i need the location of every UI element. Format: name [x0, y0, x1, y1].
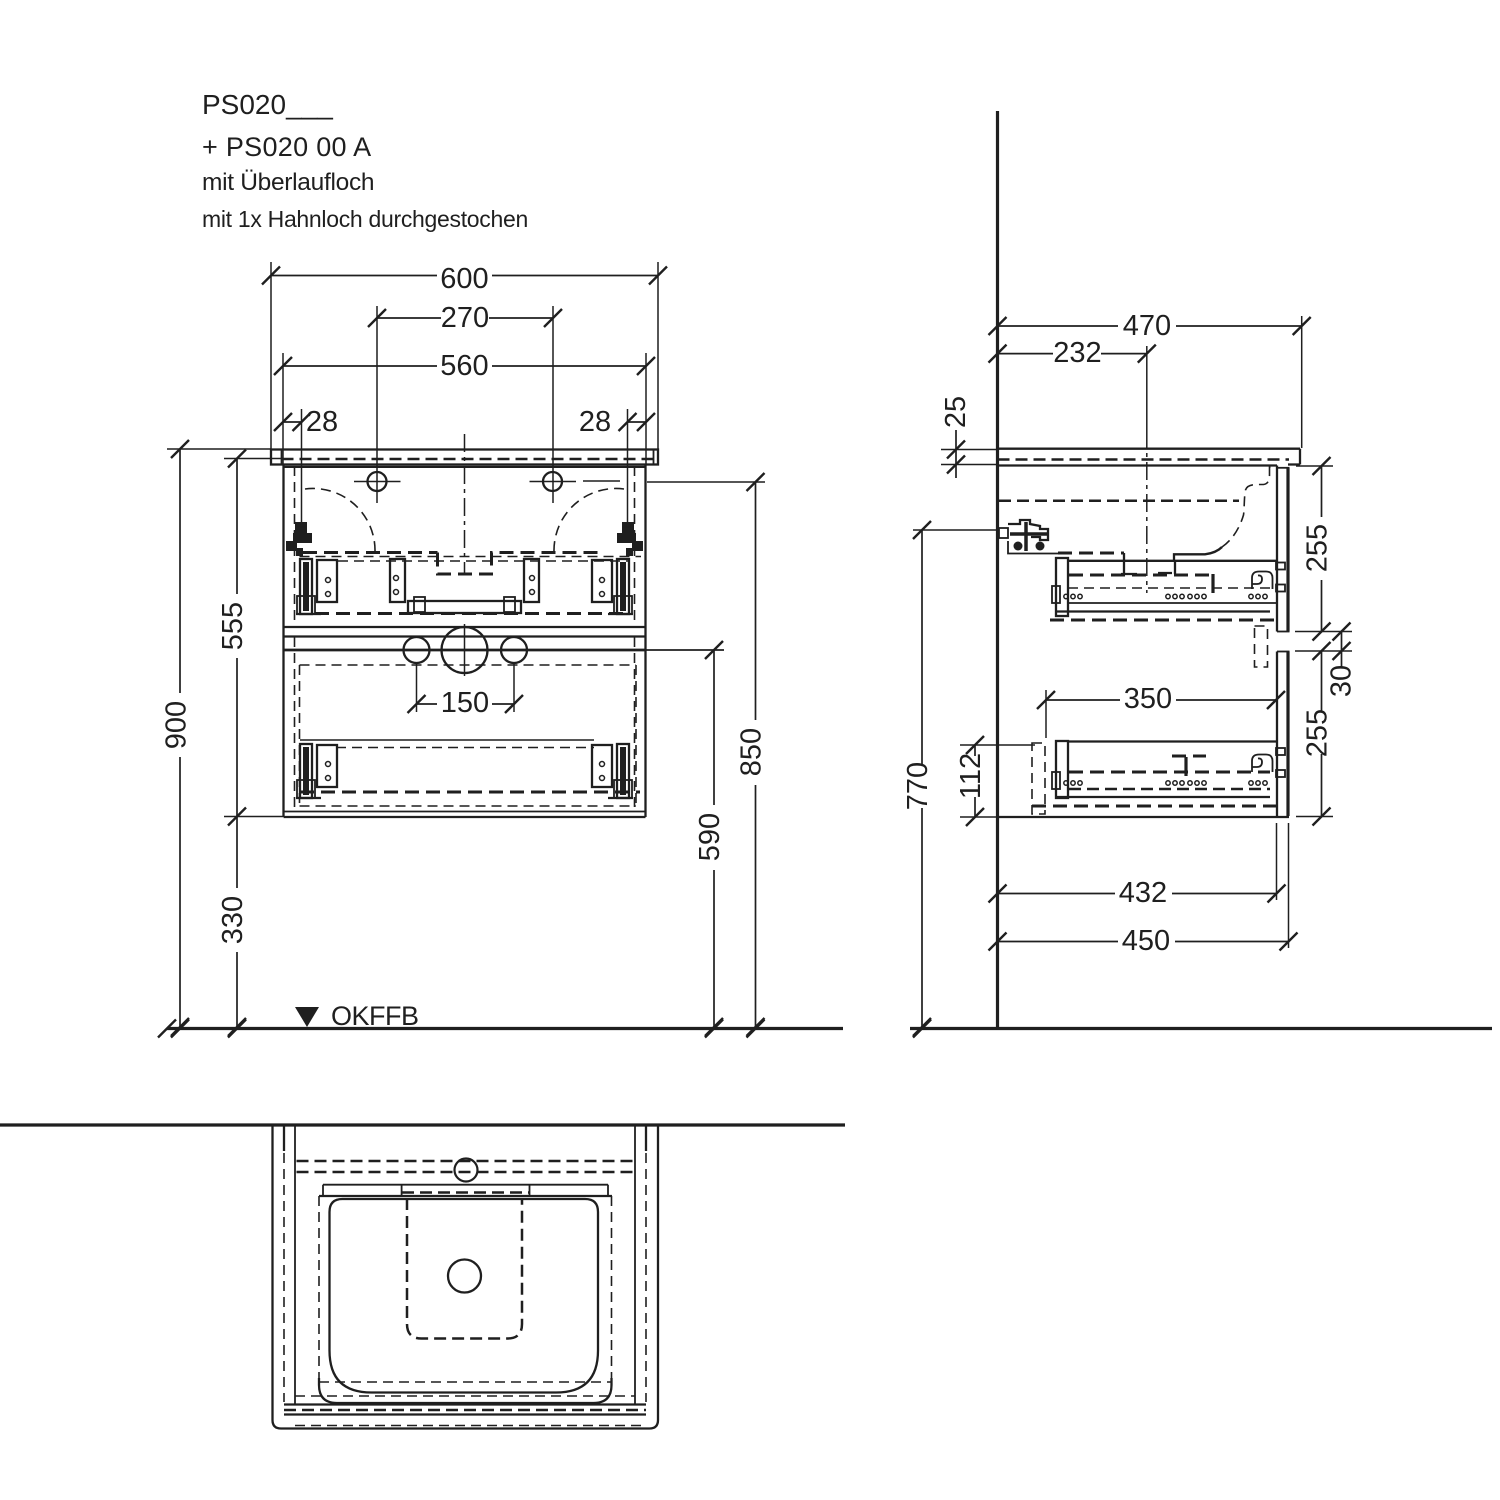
- svg-text:350: 350: [1124, 683, 1172, 715]
- svg-text:470: 470: [1123, 310, 1171, 342]
- svg-text:+ PS020 00 A: + PS020 00 A: [202, 132, 372, 162]
- svg-text:OKFFB: OKFFB: [331, 1001, 419, 1031]
- svg-text:900: 900: [161, 701, 193, 749]
- svg-text:590: 590: [694, 813, 726, 861]
- svg-text:330: 330: [217, 896, 249, 944]
- svg-text:28: 28: [579, 406, 611, 438]
- svg-text:450: 450: [1122, 925, 1170, 957]
- svg-text:PS020___: PS020___: [202, 89, 333, 120]
- svg-text:150: 150: [441, 687, 489, 719]
- svg-text:30: 30: [1326, 665, 1358, 697]
- svg-text:112: 112: [955, 753, 987, 799]
- svg-text:25: 25: [940, 396, 972, 428]
- svg-text:232: 232: [1053, 337, 1101, 369]
- svg-text:850: 850: [736, 728, 768, 776]
- svg-text:600: 600: [440, 263, 488, 295]
- svg-text:mit Überlaufloch: mit Überlaufloch: [202, 169, 374, 196]
- svg-text:770: 770: [902, 762, 934, 810]
- svg-text:255: 255: [1302, 709, 1334, 757]
- svg-text:270: 270: [441, 302, 489, 334]
- svg-text:mit 1x Hahnloch durchgestochen: mit 1x Hahnloch durchgestochen: [202, 206, 528, 232]
- svg-text:432: 432: [1119, 877, 1167, 909]
- svg-text:255: 255: [1302, 524, 1334, 572]
- svg-text:28: 28: [306, 406, 338, 438]
- svg-text:555: 555: [217, 602, 249, 650]
- svg-text:560: 560: [440, 350, 488, 382]
